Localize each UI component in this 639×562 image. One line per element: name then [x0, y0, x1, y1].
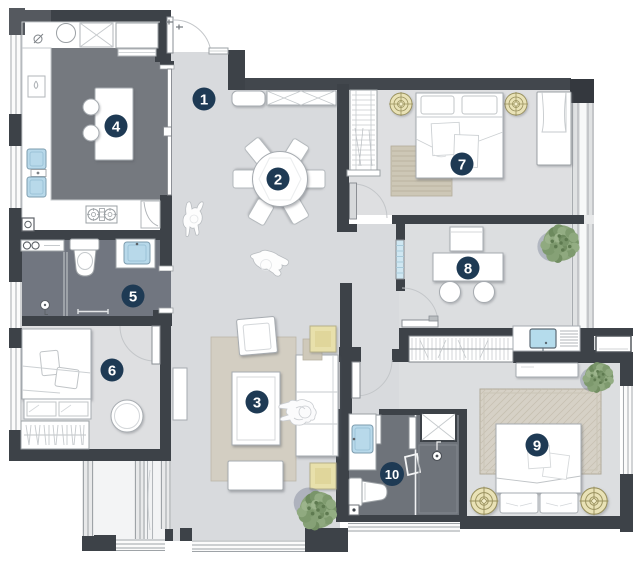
svg-text:9: 9 — [533, 438, 541, 455]
svg-text:7: 7 — [458, 157, 466, 174]
svg-text:6: 6 — [108, 363, 116, 380]
svg-text:2: 2 — [274, 172, 282, 189]
svg-text:5: 5 — [129, 289, 137, 306]
svg-text:10: 10 — [385, 467, 399, 482]
svg-text:8: 8 — [464, 261, 472, 278]
svg-text:3: 3 — [253, 395, 261, 412]
svg-text:1: 1 — [200, 92, 208, 109]
svg-text:4: 4 — [112, 119, 121, 136]
